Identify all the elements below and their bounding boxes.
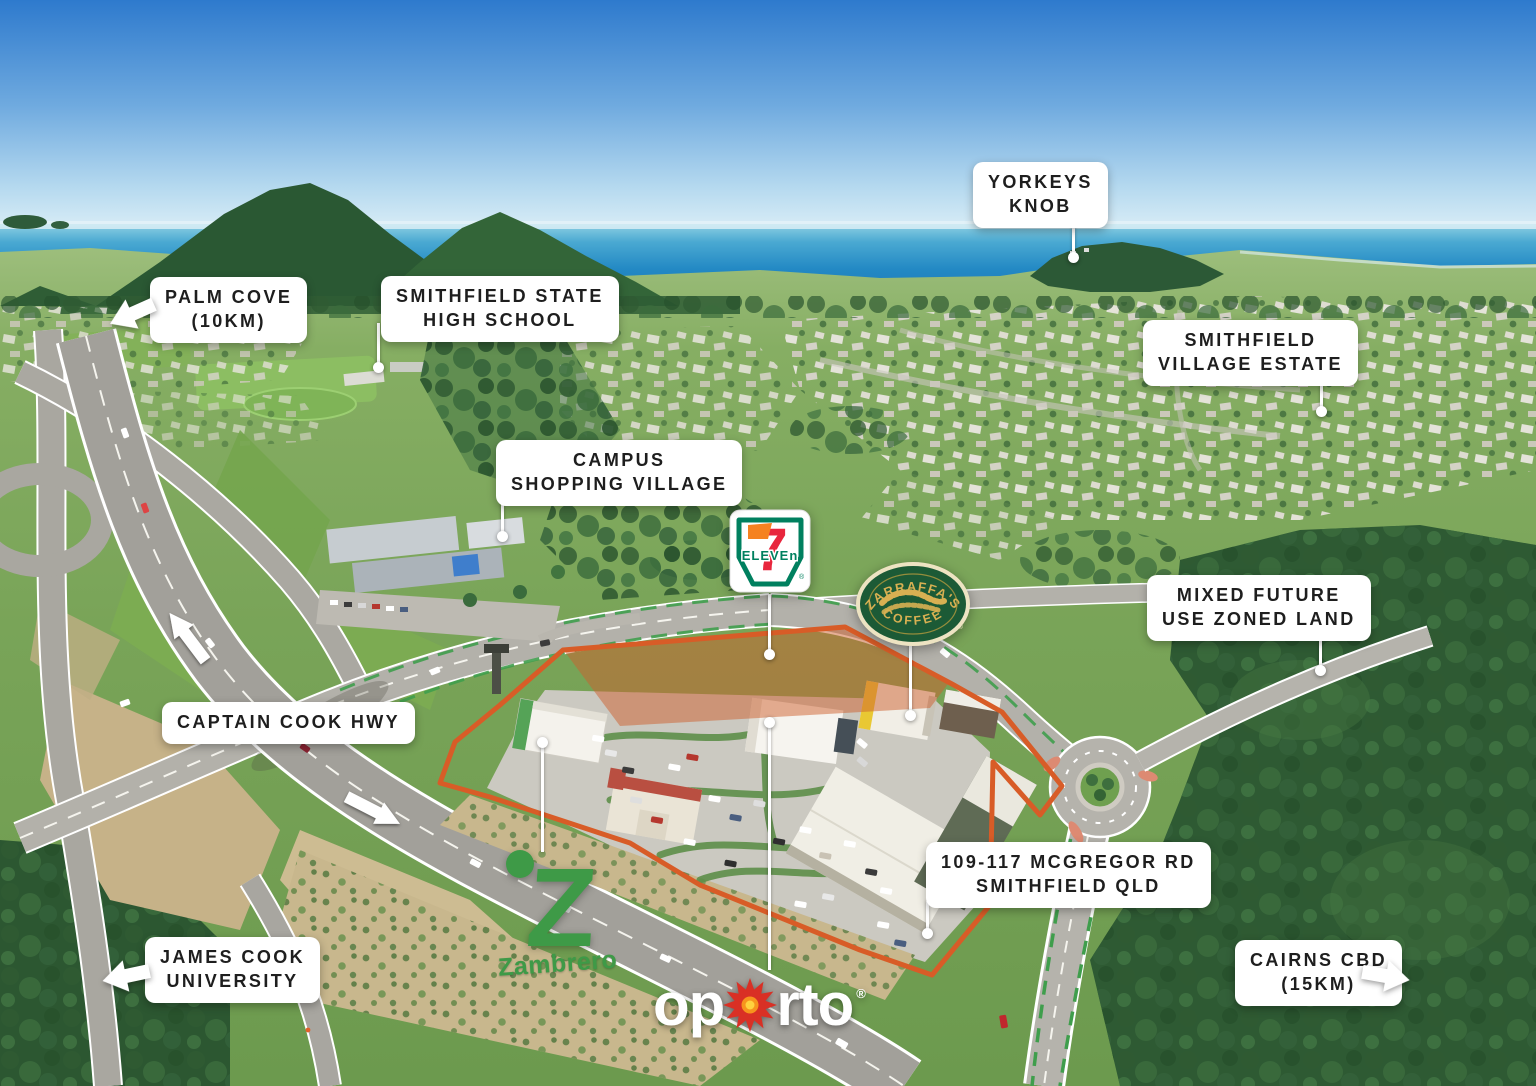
label-campus-shopping-village: CAMPUS SHOPPING VILLAGE bbox=[496, 440, 742, 506]
oporto-logo: op rto ® bbox=[653, 970, 865, 1039]
label-mixed-use-line1: MIXED FUTURE bbox=[1162, 584, 1356, 608]
label-village-estate-line1: SMITHFIELD bbox=[1158, 329, 1343, 353]
connector-dot-seven-eleven bbox=[764, 649, 775, 660]
label-mixed-future-use: MIXED FUTURE USE ZONED LAND bbox=[1147, 575, 1371, 641]
connector-line-zambrero bbox=[541, 746, 544, 852]
label-palm-cove-line2: (10KM) bbox=[165, 310, 292, 334]
label-campus-village-line1: CAMPUS bbox=[511, 449, 727, 473]
connector-dot-zambrero bbox=[537, 737, 548, 748]
label-smithfield-high-line2: HIGH SCHOOL bbox=[396, 309, 604, 333]
label-yorkeys-knob-line1: YORKEYS bbox=[988, 171, 1093, 195]
label-campus-village-line2: SHOPPING VILLAGE bbox=[511, 473, 727, 497]
label-mcgregor-line1: 109-117 MCGREGOR RD bbox=[941, 851, 1196, 875]
zarraffas-registered-mark: ® bbox=[958, 623, 963, 631]
connector-dot-oporto bbox=[764, 717, 775, 728]
connector-dot-mixed-use bbox=[1315, 665, 1326, 676]
label-yorkeys-knob-line2: KNOB bbox=[988, 195, 1093, 219]
connector-line-mixed-use bbox=[1319, 637, 1322, 667]
connector-line-seven-eleven bbox=[768, 594, 771, 651]
label-jcu-line1: JAMES COOK bbox=[160, 946, 305, 970]
label-mcgregor-line2: SMITHFIELD QLD bbox=[941, 875, 1196, 899]
connector-dot-campus-village bbox=[497, 531, 508, 542]
zambrero-initial: Z bbox=[523, 844, 600, 950]
label-captain-cook-hwy: CAPTAIN COOK HWY bbox=[162, 702, 415, 744]
connector-line-smithfield-high bbox=[377, 323, 380, 364]
label-captain-cook-line1: CAPTAIN COOK HWY bbox=[177, 711, 400, 735]
connector-line-village-estate bbox=[1320, 383, 1323, 408]
connector-dot-yorkeys-knob bbox=[1068, 252, 1079, 263]
connector-dot-village-estate bbox=[1316, 406, 1327, 417]
seven-eleven-wordmark: ELEVEn bbox=[742, 548, 799, 563]
zambrero-logo: Z Zambrero bbox=[486, 842, 636, 978]
aerial-site-map: PALM COVE (10KM) SMITHFIELD STATE HIGH S… bbox=[0, 0, 1536, 1086]
connector-dot-zarraffas bbox=[905, 710, 916, 721]
connector-dot-smithfield-high bbox=[373, 362, 384, 373]
label-smithfield-village-estate: SMITHFIELD VILLAGE ESTATE bbox=[1143, 320, 1358, 386]
seven-eleven-logo: 7 ELEVEn ® bbox=[727, 507, 813, 597]
label-jcu-line2: UNIVERSITY bbox=[160, 970, 305, 994]
label-palm-cove-line1: PALM COVE bbox=[165, 286, 292, 310]
seven-eleven-registered-mark: ® bbox=[799, 573, 805, 581]
oporto-sun-icon bbox=[721, 976, 779, 1034]
label-mixed-use-line2: USE ZONED LAND bbox=[1162, 608, 1356, 632]
oporto-wordmark-right: rto bbox=[776, 970, 853, 1039]
connector-line-zarraffas bbox=[909, 640, 912, 712]
label-palm-cove: PALM COVE (10KM) bbox=[150, 277, 307, 343]
label-mcgregor-address: 109-117 MCGREGOR RD SMITHFIELD QLD bbox=[926, 842, 1211, 908]
connector-dot-mcgregor bbox=[922, 928, 933, 939]
zambrero-wordmark: Zambrero bbox=[497, 944, 637, 983]
oporto-registered-mark: ® bbox=[856, 986, 865, 1001]
label-village-estate-line2: VILLAGE ESTATE bbox=[1158, 353, 1343, 377]
label-yorkeys-knob: YORKEYS KNOB bbox=[973, 162, 1108, 228]
zambrero-z-mark: Z bbox=[486, 842, 626, 950]
label-smithfield-high-line1: SMITHFIELD STATE bbox=[396, 285, 604, 309]
oporto-wordmark-left: op bbox=[653, 970, 724, 1039]
label-smithfield-high-school: SMITHFIELD STATE HIGH SCHOOL bbox=[381, 276, 619, 342]
zarraffas-coffee-logo: ZARRAFFA'S COFFEE ® bbox=[854, 561, 972, 647]
connector-line-oporto bbox=[768, 726, 771, 970]
label-james-cook-university: JAMES COOK UNIVERSITY bbox=[145, 937, 320, 1003]
